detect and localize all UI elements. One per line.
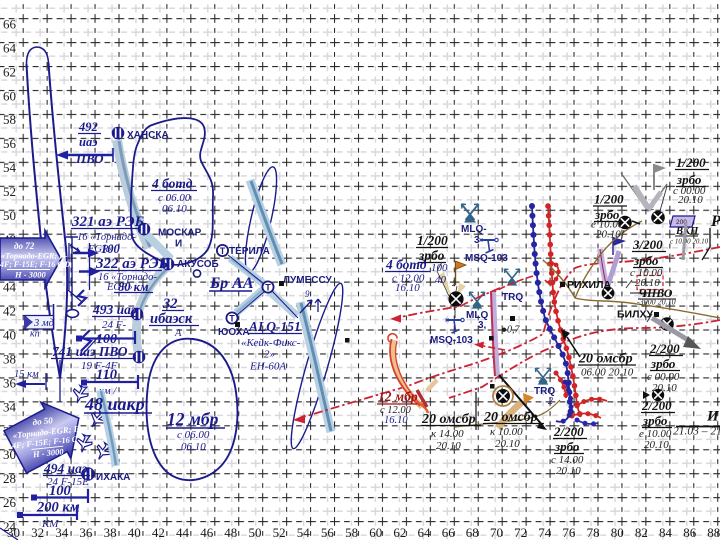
svg-text:32: 32 bbox=[162, 296, 178, 312]
svg-text:И: И bbox=[706, 409, 720, 425]
svg-text:9: 9 bbox=[305, 289, 310, 299]
svg-text:20.10: 20.10 bbox=[436, 440, 461, 452]
svg-text:-3000 20.10: -3000 20.10 bbox=[637, 298, 676, 307]
svg-text:36: 36 bbox=[79, 525, 93, 540]
svg-text:21.03 – 21: 21.03 – 21 bbox=[673, 426, 720, 438]
svg-text:зрбо: зрбо bbox=[650, 356, 676, 371]
svg-text:3/200: 3/200 bbox=[632, 237, 663, 252]
svg-text:АКУСОБ: АКУСОБ bbox=[177, 259, 219, 270]
svg-text:4 ботд: 4 ботд bbox=[151, 176, 193, 191]
svg-text:06.10: 06.10 bbox=[162, 203, 187, 215]
svg-text:38: 38 bbox=[3, 352, 16, 367]
svg-text:ИХАКА: ИХАКА bbox=[96, 472, 130, 483]
svg-text:48 иакр: 48 иакр bbox=[84, 394, 145, 414]
svg-text:ПВО: ПВО bbox=[75, 151, 104, 166]
svg-text:«Кейк-Фикс-: «Кейк-Фикс- bbox=[241, 337, 301, 349]
svg-text:66: 66 bbox=[442, 525, 456, 540]
svg-text:зрбо: зрбо bbox=[633, 253, 659, 268]
svg-text:494 иаэ: 494 иаэ bbox=[43, 461, 88, 476]
svg-text:741 иаэ ПВО: 741 иаэ ПВО bbox=[52, 344, 128, 359]
svg-text:Т: Т bbox=[220, 246, 226, 256]
svg-text:110: 110 bbox=[96, 367, 117, 383]
svg-text:82: 82 bbox=[635, 525, 648, 540]
svg-text:иаэ: иаэ bbox=[79, 135, 97, 149]
svg-text:64: 64 bbox=[3, 40, 17, 55]
svg-text:зрбо: зрбо bbox=[554, 439, 580, 454]
svg-text:ЛУМЕССУ: ЛУМЕССУ bbox=[283, 275, 333, 286]
svg-text:88: 88 bbox=[707, 525, 720, 540]
svg-text:50: 50 bbox=[3, 208, 16, 223]
svg-text:ХАНСКА: ХАНСКА bbox=[127, 130, 169, 141]
svg-text:ТЕРИЛА: ТЕРИЛА bbox=[229, 246, 270, 257]
svg-text:20 омсбр: 20 омсбр bbox=[421, 412, 476, 427]
svg-text:1/200: 1/200 bbox=[417, 233, 448, 248]
svg-text:2»: 2» bbox=[264, 349, 275, 361]
svg-text:2: 2 bbox=[452, 279, 456, 288]
svg-text:48: 48 bbox=[224, 525, 237, 540]
svg-text:к 14.00: к 14.00 bbox=[431, 428, 464, 440]
svg-text:ВКП: ВКП bbox=[675, 226, 699, 237]
svg-text:15 км: 15 км bbox=[14, 369, 39, 380]
svg-text:66: 66 bbox=[3, 17, 17, 32]
svg-text:28: 28 bbox=[3, 471, 16, 486]
svg-text:30: 30 bbox=[7, 525, 20, 540]
svg-text:56: 56 bbox=[3, 136, 17, 151]
svg-text:50: 50 bbox=[249, 525, 262, 540]
svg-text:20.10: 20.10 bbox=[596, 229, 621, 241]
svg-text:MSQ-103: MSQ-103 bbox=[465, 253, 508, 264]
svg-text:44: 44 bbox=[176, 525, 190, 540]
svg-text:20.10: 20.10 bbox=[678, 194, 703, 206]
svg-text:42: 42 bbox=[3, 304, 16, 319]
svg-text:2/200: 2/200 bbox=[553, 424, 584, 439]
svg-text:16.10: 16.10 bbox=[395, 282, 420, 294]
svg-text:ибаэск: ибаэск bbox=[150, 311, 193, 327]
svg-text:2/200: 2/200 bbox=[649, 341, 680, 356]
svg-text:Т: Т bbox=[229, 313, 235, 323]
svg-text:68: 68 bbox=[466, 525, 479, 540]
svg-text:3: 3 bbox=[474, 235, 480, 246]
svg-text:с 06.00: с 06.00 bbox=[177, 429, 210, 441]
svg-text:4 ботд: 4 ботд bbox=[385, 257, 427, 272]
svg-text:42: 42 bbox=[152, 525, 165, 540]
svg-text:322 аэ РЭБ: 322 аэ РЭБ bbox=[95, 256, 169, 272]
svg-text:40: 40 bbox=[3, 328, 16, 343]
svg-text:20 омсбр: 20 омсбр bbox=[483, 410, 538, 425]
svg-text:зрбо: зрбо bbox=[642, 413, 668, 428]
svg-text:16.10: 16.10 bbox=[384, 415, 408, 426]
svg-text:БИЛХУ: БИЛХУ bbox=[617, 309, 653, 321]
svg-text:70: 70 bbox=[490, 525, 503, 540]
svg-text:с 10.00 20.10: с 10.00 20.10 bbox=[670, 238, 709, 246]
svg-text:МОСКАР: МОСКАР bbox=[158, 228, 202, 239]
svg-text:12 мбр: 12 мбр bbox=[378, 389, 418, 404]
svg-text:12 мбр: 12 мбр bbox=[167, 409, 219, 429]
svg-text:86: 86 bbox=[683, 525, 697, 540]
svg-text:60: 60 bbox=[3, 88, 16, 103]
svg-text:52: 52 bbox=[273, 525, 286, 540]
svg-text:2: 2 bbox=[548, 396, 553, 407]
svg-text:к 10.00: к 10.00 bbox=[490, 426, 523, 438]
svg-text:20.10: 20.10 bbox=[556, 465, 581, 477]
svg-text:20.10: 20.10 bbox=[644, 439, 669, 451]
svg-text:64: 64 bbox=[418, 525, 432, 540]
svg-text:И: И bbox=[175, 239, 182, 250]
svg-text:●0,7: ●0,7 bbox=[501, 325, 521, 336]
svg-text:74: 74 bbox=[538, 525, 552, 540]
svg-text:44: 44 bbox=[3, 280, 17, 295]
svg-text:ЕН-60А: ЕН-60А bbox=[249, 361, 286, 373]
svg-text:62: 62 bbox=[3, 64, 16, 79]
svg-text:Бр АА: Бр АА bbox=[209, 275, 254, 292]
svg-text:38: 38 bbox=[104, 525, 117, 540]
svg-text:72: 72 bbox=[514, 525, 527, 540]
svg-text:ALQ-151: ALQ-151 bbox=[248, 319, 301, 334]
svg-text:52: 52 bbox=[3, 184, 16, 199]
svg-text:24 F-: 24 F- bbox=[102, 319, 126, 331]
svg-text:Т: Т bbox=[265, 282, 271, 292]
svg-text:100: 100 bbox=[431, 262, 448, 274]
svg-text:РИХИЛА: РИХИЛА bbox=[567, 279, 611, 291]
svg-text:20.10: 20.10 bbox=[495, 438, 520, 450]
svg-text:54: 54 bbox=[3, 160, 17, 175]
svg-text:40: 40 bbox=[128, 525, 141, 540]
svg-text:06.00 20.10: 06.00 20.10 bbox=[581, 367, 634, 379]
svg-text:46: 46 bbox=[200, 525, 214, 540]
svg-text:60: 60 bbox=[369, 525, 382, 540]
svg-text:492: 492 bbox=[78, 120, 98, 134]
svg-text:54: 54 bbox=[297, 525, 311, 540]
svg-text:34: 34 bbox=[3, 399, 17, 414]
svg-text:26: 26 bbox=[3, 495, 17, 510]
svg-text:КМ: КМ bbox=[41, 518, 59, 530]
svg-text:40: 40 bbox=[435, 274, 447, 286]
svg-text:200 км: 200 км bbox=[36, 500, 80, 516]
svg-text:3 мд: 3 мд bbox=[33, 318, 54, 329]
svg-text:MSQ-103: MSQ-103 bbox=[430, 335, 473, 346]
svg-text:493 иаэ: 493 иаэ bbox=[92, 302, 137, 317]
svg-text:Н - 3000: Н - 3000 bbox=[14, 270, 46, 280]
svg-text:А: А bbox=[174, 328, 182, 339]
svg-text:58: 58 bbox=[3, 112, 16, 127]
svg-text:кп: кп bbox=[30, 329, 40, 340]
svg-text:4F; F-15Е; F-16 C/D: 4F; F-15Е; F-16 C/D bbox=[0, 260, 71, 269]
svg-text:TRQ: TRQ bbox=[502, 292, 523, 303]
svg-text:78: 78 bbox=[587, 525, 600, 540]
svg-text:MLQ-: MLQ- bbox=[461, 224, 487, 235]
svg-text:56: 56 bbox=[321, 525, 335, 540]
svg-text:58: 58 bbox=[345, 525, 358, 540]
svg-text:321 аэ РЭБ: 321 аэ РЭБ bbox=[71, 214, 145, 230]
svg-text:20 омсбр: 20 омсбр bbox=[578, 352, 633, 367]
svg-text:до 72: до 72 bbox=[14, 241, 35, 251]
svg-text:1/200: 1/200 bbox=[676, 155, 706, 170]
svg-text:84: 84 bbox=[659, 525, 673, 540]
svg-text:06.10: 06.10 bbox=[181, 441, 206, 453]
svg-text:1/200: 1/200 bbox=[594, 192, 624, 207]
svg-text:100: 100 bbox=[101, 242, 121, 256]
svg-text:Р: Р bbox=[710, 213, 720, 230]
svg-text:3,: 3, bbox=[478, 320, 487, 331]
svg-text:80: 80 bbox=[611, 525, 624, 540]
svg-text:76: 76 bbox=[562, 525, 576, 540]
svg-text:62: 62 bbox=[393, 525, 406, 540]
